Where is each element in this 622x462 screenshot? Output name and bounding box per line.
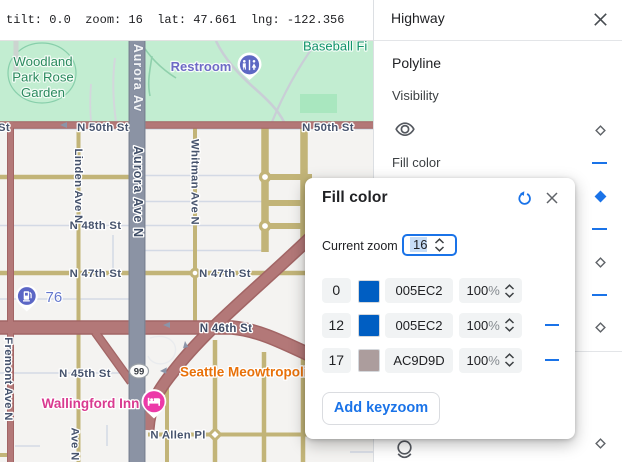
svg-text:N 47th St: N 47th St	[70, 268, 122, 280]
svg-text:Aurora Av: Aurora Av	[131, 44, 145, 113]
svg-text:Aurora Ave N: Aurora Ave N	[131, 146, 145, 238]
svg-text:Linden Ave N: Linden Ave N	[72, 149, 84, 224]
svg-text:N 46th St: N 46th St	[200, 323, 253, 335]
svg-text:St: St	[0, 122, 10, 134]
svg-text:N 47th St: N 47th St	[199, 268, 251, 280]
svg-text:Restroom: Restroom	[171, 59, 232, 74]
svg-text:Fremont Ave N: Fremont Ave N	[2, 337, 14, 420]
svg-text:76: 76	[46, 289, 63, 306]
svg-text:Garden: Garden	[21, 85, 65, 100]
svg-text:Wallingford Inn: Wallingford Inn	[42, 396, 140, 411]
svg-text:N 50th St: N 50th St	[77, 122, 129, 134]
svg-text:Park Rose: Park Rose	[12, 70, 74, 85]
svg-text:Woodland: Woodland	[13, 54, 72, 69]
svg-text:N Allen Pl: N Allen Pl	[150, 430, 205, 442]
svg-text:99: 99	[134, 367, 145, 378]
svg-text:N 50th St: N 50th St	[302, 122, 354, 134]
svg-text:Seattle Meowtropoli: Seattle Meowtropoli	[180, 365, 308, 380]
svg-text:N 45th St: N 45th St	[59, 368, 111, 380]
svg-text:Whitman Ave N: Whitman Ave N	[189, 139, 201, 225]
svg-text:Ave N: Ave N	[69, 427, 81, 460]
